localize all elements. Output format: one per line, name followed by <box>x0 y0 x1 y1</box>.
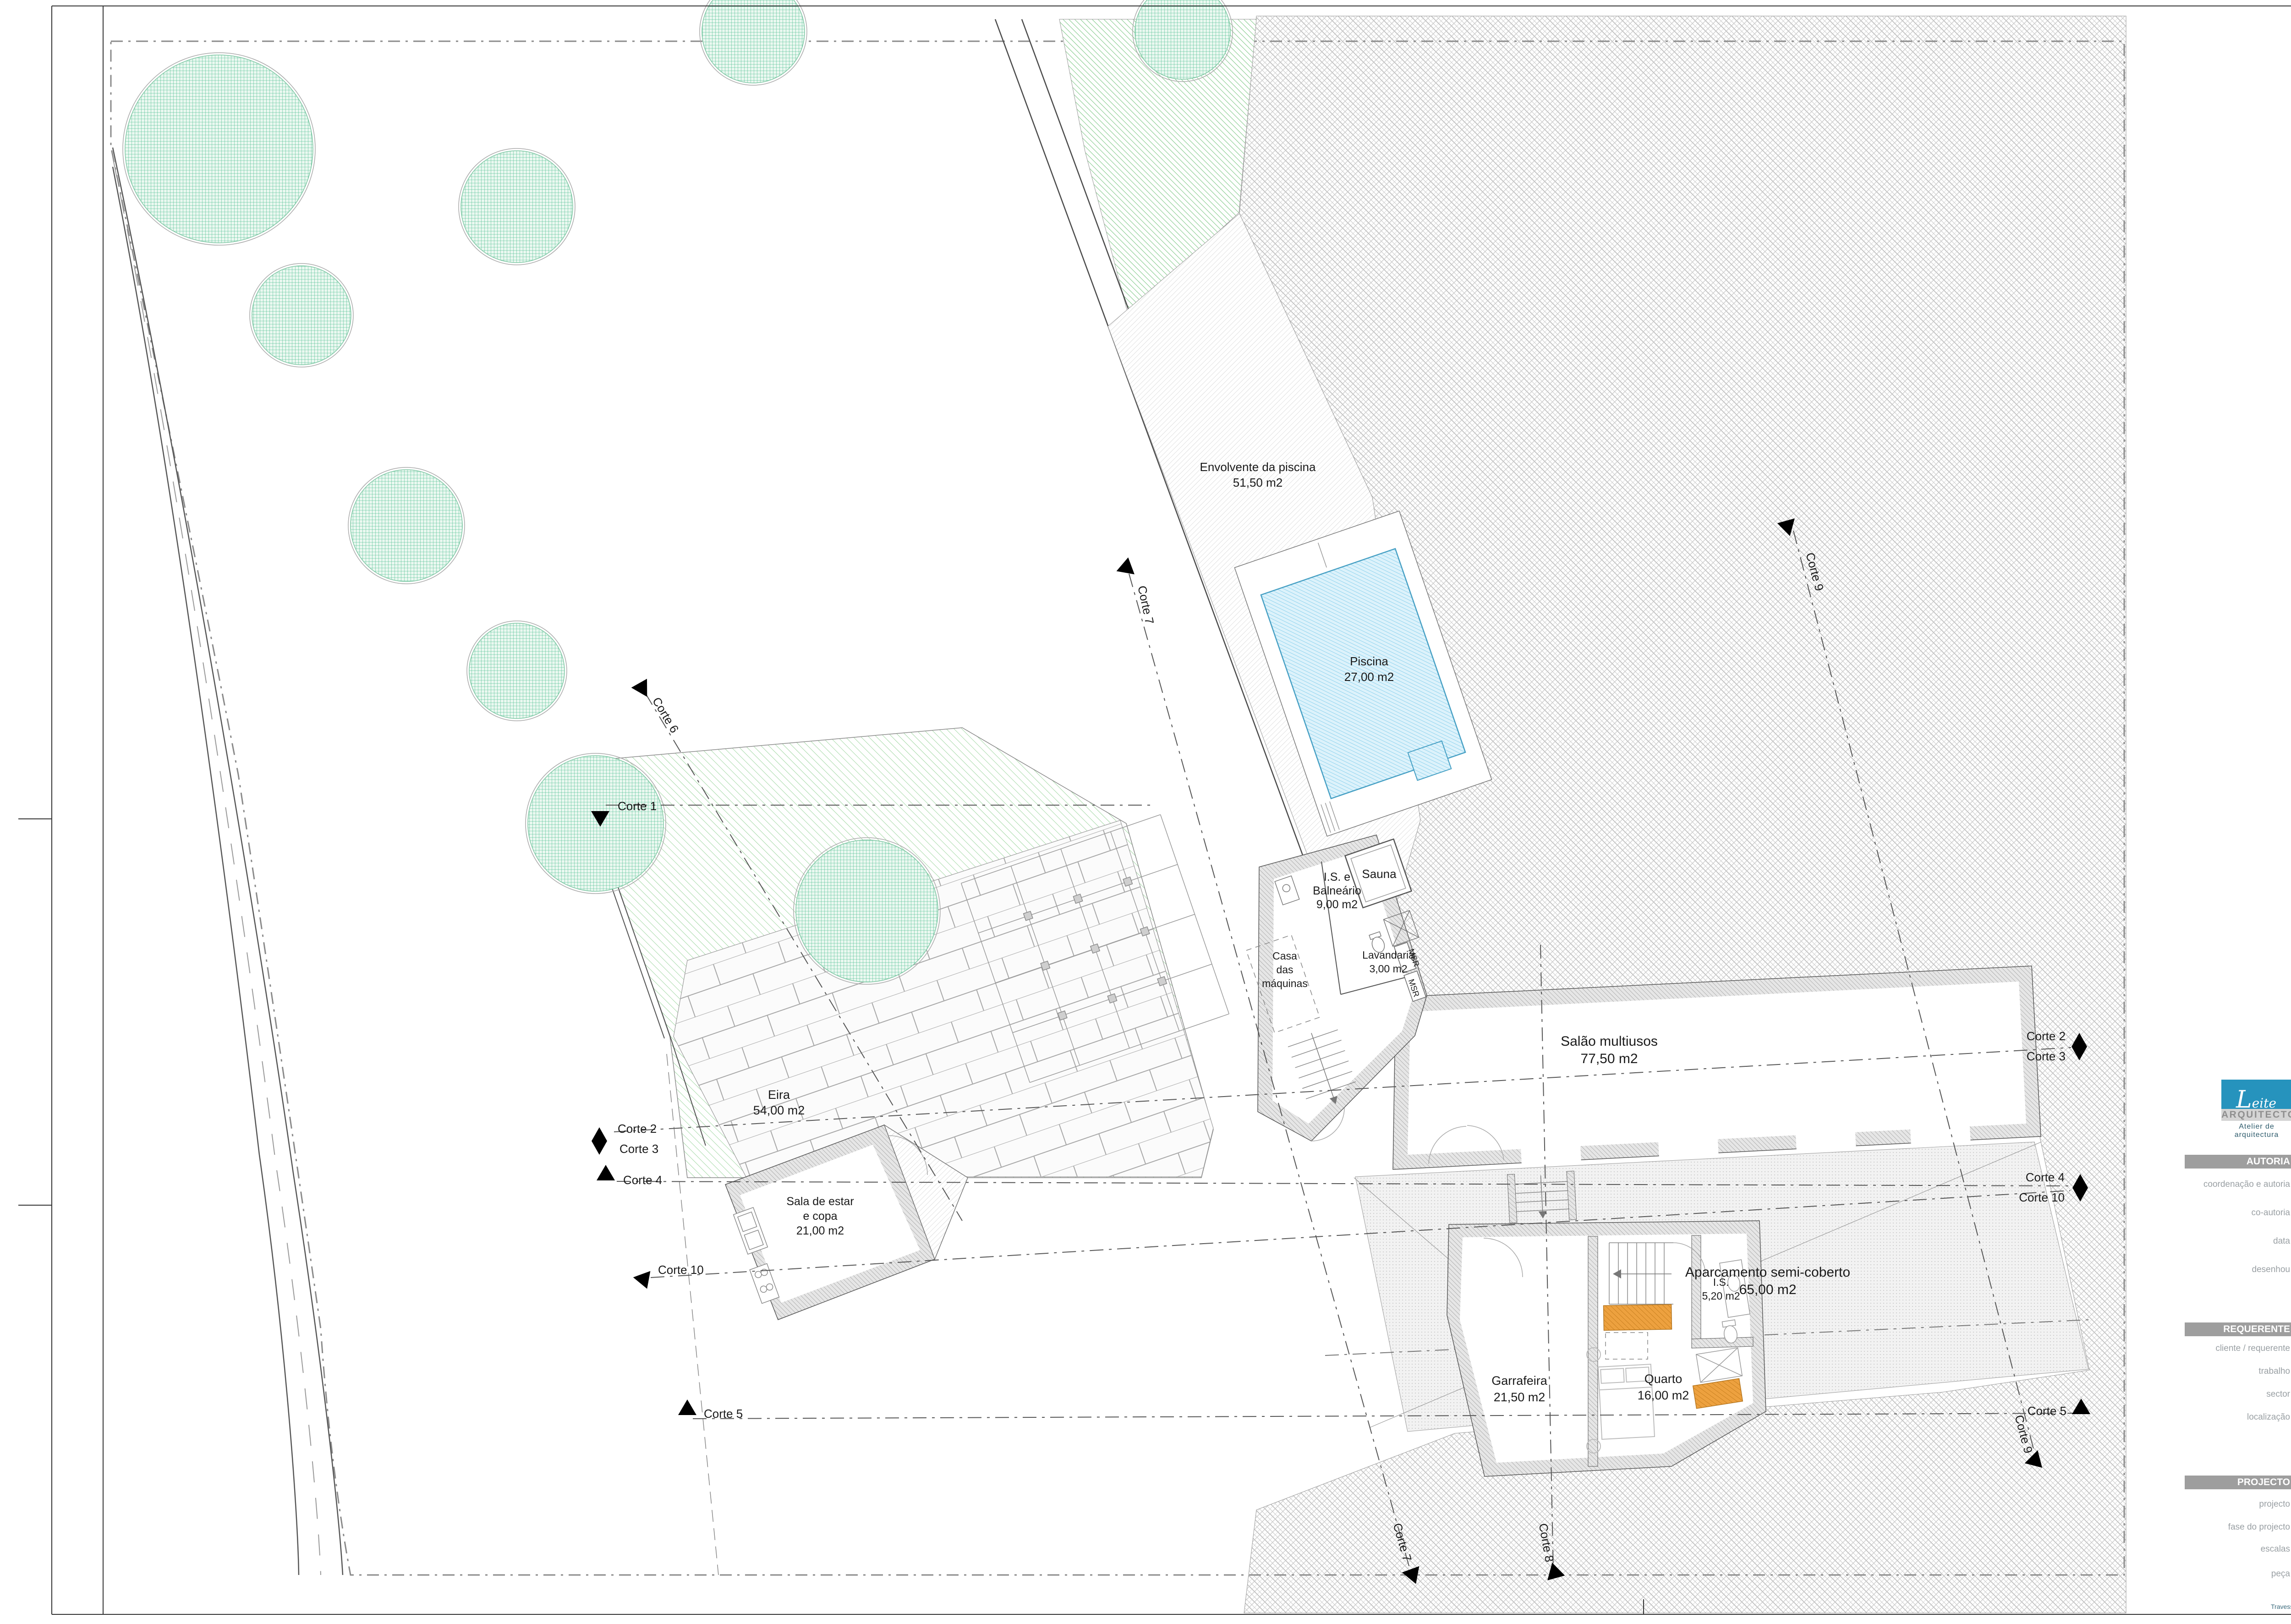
titleblock-row: fase do projecto ESTUDO PRÉVIO <box>2186 1522 2291 1536</box>
label-quarto-area: 16,00 m2 <box>1638 1388 1689 1402</box>
section-label: Corte 4 <box>623 1173 662 1187</box>
label-garrafeira: Garrafeira <box>1491 1374 1548 1388</box>
titleblock-row: ANTÓNIO CARVALHO + CARMEN CAPELO <box>2186 1323 2291 1337</box>
section-label: Corte 3 <box>2027 1049 2066 1063</box>
tree <box>459 148 575 265</box>
firm-logo-line2: Atelier de arquitectura <box>2218 1123 2291 1139</box>
label-parking: Aparcamento semi-coberto <box>1685 1265 1850 1280</box>
section-label: Corte 2 <box>2027 1029 2066 1043</box>
section-marker-corte5-left <box>678 1399 696 1415</box>
field-label: cliente / requerente <box>2186 1344 2290 1354</box>
field-label: escalas <box>2186 1544 2290 1554</box>
section-header-projecto: PROJECTO <box>2185 1476 2291 1489</box>
field-label: peça <box>2186 1569 2290 1579</box>
label-lavandaria-area: 3,00 m2 <box>1369 963 1407 975</box>
section-marker-corte10-left <box>633 1271 656 1292</box>
label-garrafeira-area: 21,50 m2 <box>1494 1390 1546 1404</box>
tree <box>467 621 567 721</box>
tree <box>348 467 465 584</box>
field-label: co-autoria <box>2186 1208 2290 1218</box>
label-sauna: Sauna <box>1362 867 1397 881</box>
titleblock-row: sector <box>2186 1389 2291 1403</box>
section-label: Corte 5 <box>2028 1404 2066 1418</box>
section-label: Corte 4 <box>2026 1170 2065 1184</box>
section-label: Corte 1 <box>618 799 657 813</box>
field-label: data <box>2186 1236 2290 1246</box>
titleblock-row: cliente / requerente <box>2186 1344 2291 1357</box>
label-envolvente-area: 51,50 m2 <box>1233 476 1283 489</box>
label-casa-maquinas2: das <box>1276 964 1293 976</box>
field-label: trabalho <box>2186 1366 2290 1377</box>
label-is-area: 5,20 m2 <box>1702 1290 1740 1302</box>
label-casa-maquinas3: máquinas <box>1262 977 1308 989</box>
field-label: projecto <box>2186 1499 2290 1509</box>
field-label: sector <box>2186 1389 2290 1399</box>
section-label: Corte 3 <box>619 1142 658 1156</box>
titleblock-row: trabalho REMODELAÇÃO DE CASA RURAL <box>2186 1366 2291 1380</box>
floor-plan-drawing: Corte 1 Corte 6 Corte 2 Corte 3 Corte 4 … <box>0 0 2291 1624</box>
road-centerline <box>113 157 321 1575</box>
section-marker-corte4-left <box>597 1165 615 1180</box>
label-sala2: e copa <box>803 1210 837 1223</box>
section-label: Corte 5 <box>704 1407 743 1421</box>
stair-cabinet-orange <box>1604 1305 1672 1331</box>
label-piscina-area: 27,00 m2 <box>1344 670 1394 684</box>
label-parking-area: 65,00 m2 <box>1739 1282 1796 1297</box>
section-marker-corte7-top <box>1117 556 1137 574</box>
drawing-sheet: Corte 1 Corte 6 Corte 2 Corte 3 Corte 4 … <box>0 0 2291 1624</box>
label-salao: Salão multiusos <box>1561 1034 1658 1049</box>
label-piscina: Piscina <box>1350 654 1388 668</box>
label-salao-area: 77,50 m2 <box>1580 1051 1638 1066</box>
label-is: I.S. <box>1713 1276 1729 1288</box>
section-marker-corte6 <box>631 674 655 697</box>
tree <box>250 263 353 367</box>
tree <box>700 0 807 85</box>
label-sala-area: 21,00 m2 <box>796 1224 844 1237</box>
titleblock-row: projecto ARQUITECTURA <box>2186 1499 2291 1513</box>
section-label: Corte 7 <box>1135 584 1156 625</box>
label-balneario: I.S. e <box>1324 871 1350 883</box>
section-header-autoria: AUTORIA <box>2185 1155 2291 1169</box>
label-balneario2: Balneário <box>1313 884 1361 897</box>
office-address: Travessa da Arcela, nº 45 - 4810 554 COS… <box>2271 1603 2291 1610</box>
section-label: Corte 10 <box>658 1263 704 1277</box>
titleblock-row: co-autoria <box>2186 1208 2291 1222</box>
titleblock-row: data 14 / 11 / 2020 <box>2186 1236 2291 1250</box>
label-envolvente: Envolvente da piscina <box>1200 460 1316 474</box>
field-label: coordenação e autoria <box>2186 1180 2290 1190</box>
section-marker-corte2-3-left <box>592 1127 607 1155</box>
section-label: Corte 6 <box>650 695 682 735</box>
titleblock-row: desenhou CARLOS OLIVEIRA <box>2186 1265 2291 1278</box>
titleblock-row: localização GOMINHÃES - GUIMARÃES <box>2186 1412 2291 1426</box>
label-quarto: Quarto <box>1644 1372 1683 1386</box>
titleblock-row: peça PROPOSTA - PLANTA PISO -1 <box>2186 1569 2291 1583</box>
building-quarto <box>1447 1221 1766 1476</box>
label-casa-maquinas: Casa <box>1272 950 1297 962</box>
titleblock-row: escalas 1:100 <box>2186 1544 2291 1558</box>
section-label: Corte 2 <box>618 1122 657 1136</box>
label-eira: Eira <box>768 1088 790 1102</box>
field-label: fase do projecto <box>2186 1522 2290 1532</box>
firm-logo-line1: ARQUITECTOS <box>2221 1109 2291 1121</box>
titleblock-row: coordenação e autoria CARLOS OLIVEIRA, A… <box>2186 1180 2291 1193</box>
field-label: desenhou <box>2186 1265 2290 1275</box>
section-label: Corte 10 <box>2019 1191 2065 1204</box>
tree <box>123 53 315 245</box>
field-label: localização <box>2186 1412 2290 1422</box>
label-eira-area: 54,00 m2 <box>753 1103 805 1117</box>
label-sala: Sala de estar <box>786 1195 854 1208</box>
label-balneario-area: 9,00 m2 <box>1316 898 1358 911</box>
